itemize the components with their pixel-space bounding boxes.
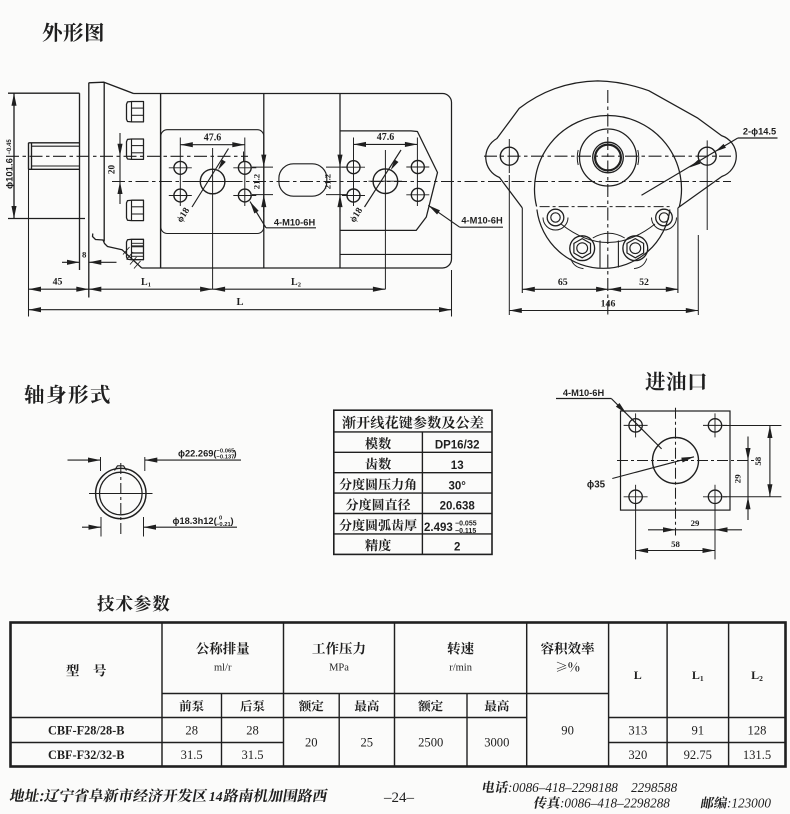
svg-text:21.2: 21.2 [251, 173, 261, 189]
svg-text:31.5: 31.5 [181, 748, 203, 762]
svg-text:90: 90 [561, 723, 574, 737]
svg-text:20: 20 [305, 735, 318, 749]
svg-text:r/min: r/min [449, 663, 472, 674]
svg-text:L: L [236, 297, 243, 308]
svg-text:ϕ35: ϕ35 [587, 480, 606, 491]
svg-text:ml/r: ml/r [214, 663, 232, 674]
svg-text::0086–418–2298188 2298588: :0086–418–2298188 2298588 [508, 780, 678, 795]
svg-text:ϕ22.269(: ϕ22.269( [178, 449, 217, 459]
svg-text:313: 313 [628, 723, 647, 737]
svg-text:92.75: 92.75 [684, 748, 712, 762]
svg-text:2-ϕ14.5: 2-ϕ14.5 [743, 127, 776, 137]
svg-text:): ) [234, 449, 237, 459]
svg-text:14: 14 [209, 789, 223, 804]
svg-text:−0.065: −0.065 [217, 448, 236, 454]
svg-text:146: 146 [601, 298, 616, 309]
svg-text:47.6: 47.6 [204, 132, 222, 143]
svg-text:20: 20 [108, 165, 118, 175]
svg-text:8: 8 [82, 250, 87, 260]
svg-text:CBF-F32/32-B: CBF-F32/32-B [48, 748, 125, 762]
svg-text:58: 58 [671, 539, 680, 549]
svg-text:47.6: 47.6 [377, 132, 395, 143]
svg-text:30°: 30° [449, 480, 467, 492]
svg-text:CBF-F28/28-B: CBF-F28/28-B [48, 723, 125, 737]
svg-text:4-M10-6H: 4-M10-6H [461, 216, 503, 226]
svg-text:−0.45: −0.45 [7, 139, 13, 155]
svg-text:2500: 2500 [418, 735, 443, 749]
svg-text:L: L [634, 668, 642, 682]
svg-text:4-M10-6H: 4-M10-6H [274, 217, 316, 227]
svg-text:31.5: 31.5 [241, 748, 263, 762]
svg-text:52: 52 [639, 277, 649, 288]
svg-text:28: 28 [185, 723, 198, 737]
svg-text:128: 128 [748, 723, 767, 737]
svg-text::123000: :123000 [727, 796, 771, 811]
svg-text:ϕ18.3h12(: ϕ18.3h12( [173, 516, 218, 526]
svg-text:2.493: 2.493 [424, 522, 453, 534]
svg-text:0: 0 [219, 516, 222, 522]
svg-text:ϕ101.6: ϕ101.6 [5, 158, 16, 189]
svg-text:29: 29 [691, 518, 700, 528]
svg-text:29: 29 [733, 474, 743, 483]
svg-text:−0.137: −0.137 [217, 455, 235, 461]
svg-text:−0.055: −0.055 [455, 521, 477, 528]
svg-text:–24–: –24– [383, 790, 415, 806]
svg-text:13: 13 [451, 460, 464, 472]
svg-text:45: 45 [53, 276, 63, 287]
svg-text:65: 65 [558, 277, 568, 288]
svg-text:DP16/32: DP16/32 [435, 440, 480, 452]
svg-text:−0.115: −0.115 [455, 528, 476, 535]
svg-text:−0.21: −0.21 [216, 522, 231, 528]
svg-text:MPa: MPa [329, 663, 349, 674]
svg-text::0086–418–2298288: :0086–418–2298288 [560, 796, 670, 811]
svg-text:20.638: 20.638 [440, 501, 476, 513]
svg-text:21.2: 21.2 [323, 173, 333, 189]
svg-text:2: 2 [454, 541, 460, 553]
svg-text:91: 91 [692, 723, 705, 737]
svg-text:4-M10-6H: 4-M10-6H [563, 388, 605, 398]
svg-text:28: 28 [246, 723, 259, 737]
svg-text:320: 320 [628, 748, 647, 762]
svg-text:): ) [231, 516, 234, 526]
svg-text:25: 25 [361, 735, 374, 749]
svg-text:131.5: 131.5 [743, 748, 771, 762]
svg-text:3000: 3000 [484, 735, 509, 749]
svg-text:58: 58 [753, 456, 763, 465]
